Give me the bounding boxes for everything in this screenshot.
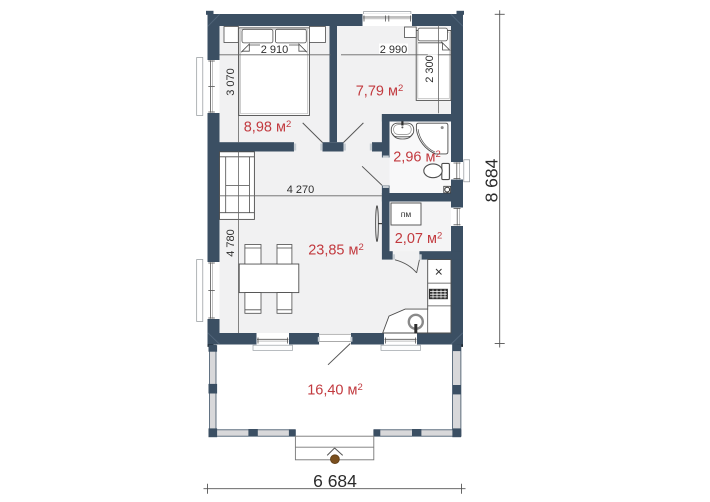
svg-text:2,07 м2: 2,07 м2 [395, 231, 443, 248]
svg-text:8 684: 8 684 [481, 158, 501, 202]
svg-text:6 684: 6 684 [313, 471, 357, 491]
svg-text:8,98 м2: 8,98 м2 [244, 119, 292, 136]
svg-text:23,85 м2: 23,85 м2 [308, 242, 364, 259]
svg-text:2 300: 2 300 [424, 55, 436, 83]
svg-text:3 070: 3 070 [225, 68, 237, 96]
svg-text:7,79 м2: 7,79 м2 [356, 83, 404, 100]
svg-text:2,96 м2: 2,96 м2 [393, 149, 441, 166]
svg-text:2 990: 2 990 [380, 44, 408, 56]
svg-text:16,40 м2: 16,40 м2 [307, 382, 363, 399]
svg-text:2 910: 2 910 [261, 44, 289, 56]
svg-text:4 270: 4 270 [287, 184, 315, 196]
svg-text:пм: пм [401, 209, 412, 219]
svg-text:4 780: 4 780 [225, 229, 237, 257]
